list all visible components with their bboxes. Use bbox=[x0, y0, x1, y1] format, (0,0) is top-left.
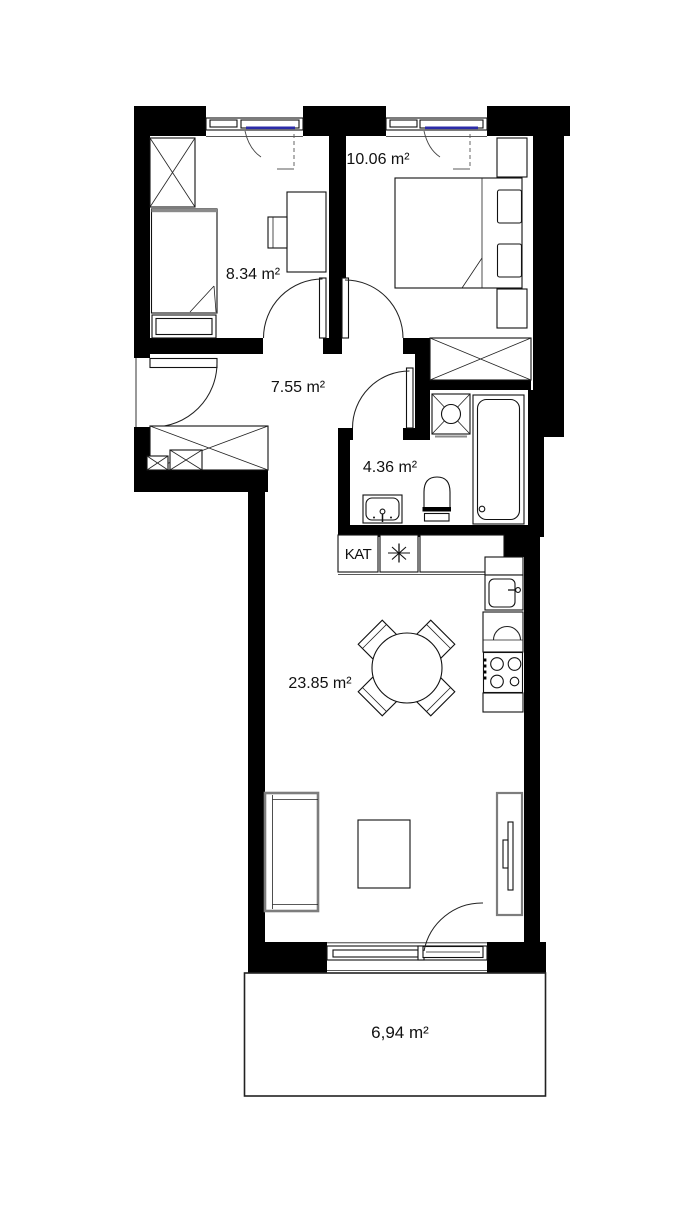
window-glazing bbox=[425, 127, 478, 130]
window-glazing bbox=[246, 127, 295, 130]
kat-label: KAT bbox=[345, 546, 372, 563]
kitchen-sink-icon bbox=[485, 575, 523, 610]
tv-stand-icon bbox=[497, 793, 522, 915]
built-in-wardrobe-icon bbox=[430, 338, 531, 380]
chair-icon bbox=[268, 217, 287, 248]
window-small-bedroom bbox=[206, 118, 303, 169]
double-bed-icon bbox=[395, 178, 522, 288]
balcony-window-door bbox=[327, 903, 487, 971]
room-small-bedroom: 8.34 m² bbox=[150, 138, 326, 338]
door-swing-icon bbox=[353, 368, 414, 428]
nightstand-icon bbox=[497, 138, 527, 177]
area-label-living-kitchen: 23.85 m² bbox=[288, 675, 352, 692]
window-swing-icon bbox=[245, 131, 261, 157]
room-living-kitchen: KAT bbox=[265, 535, 523, 915]
oven-icon bbox=[483, 612, 523, 652]
door-swing-icon bbox=[342, 278, 403, 338]
area-label-balcony: 6,94 m² bbox=[371, 1023, 429, 1042]
counter-segment bbox=[483, 693, 523, 712]
washbasin-icon bbox=[363, 495, 402, 523]
wardrobe-icon bbox=[150, 138, 195, 207]
area-label-small-bedroom: 8.34 m² bbox=[226, 266, 281, 283]
stove-icon bbox=[484, 653, 523, 693]
desk-icon bbox=[287, 192, 326, 272]
area-label-large-bedroom: 10.06 m² bbox=[346, 151, 410, 168]
pillow-icon bbox=[498, 190, 522, 223]
kitchen-column bbox=[483, 557, 523, 712]
floor-plan-canvas: 8.34 m² 10.06 m² bbox=[0, 0, 695, 1210]
dining-set bbox=[358, 620, 455, 716]
drain-icon bbox=[479, 506, 485, 512]
coffee-table-icon bbox=[358, 820, 410, 888]
balcony-door-swing-icon bbox=[423, 903, 483, 958]
counter-segment bbox=[485, 557, 523, 575]
area-label-bathroom: 4.36 m² bbox=[363, 459, 418, 476]
pillow-icon bbox=[498, 244, 522, 277]
window-swing-icon bbox=[424, 131, 440, 157]
room-large-bedroom: 10.06 m² bbox=[342, 138, 531, 380]
area-label-hallway: 7.55 m² bbox=[271, 379, 326, 396]
toilet-icon bbox=[423, 477, 452, 521]
kitchen-counter-strip: KAT bbox=[338, 535, 504, 575]
room-balcony: 6,94 m² bbox=[245, 973, 546, 1096]
floor-plan: 8.34 m² 10.06 m² bbox=[0, 0, 695, 1210]
faucet-icon bbox=[516, 588, 521, 593]
door-swing-icon bbox=[264, 278, 327, 338]
room-bathroom: 4.36 m² bbox=[353, 368, 525, 524]
bathtub-icon bbox=[473, 395, 524, 524]
dining-table-icon bbox=[372, 633, 442, 703]
tv-icon bbox=[508, 822, 513, 890]
window-icon bbox=[333, 950, 418, 957]
nightstand-icon bbox=[497, 289, 527, 328]
washing-machine-icon bbox=[432, 394, 470, 437]
sofa-icon bbox=[265, 793, 318, 911]
single-bed-icon bbox=[152, 209, 218, 338]
entry-door-swing-icon bbox=[150, 359, 217, 428]
faucet-icon bbox=[380, 509, 385, 514]
room-hallway: 7.55 m² bbox=[136, 358, 326, 470]
